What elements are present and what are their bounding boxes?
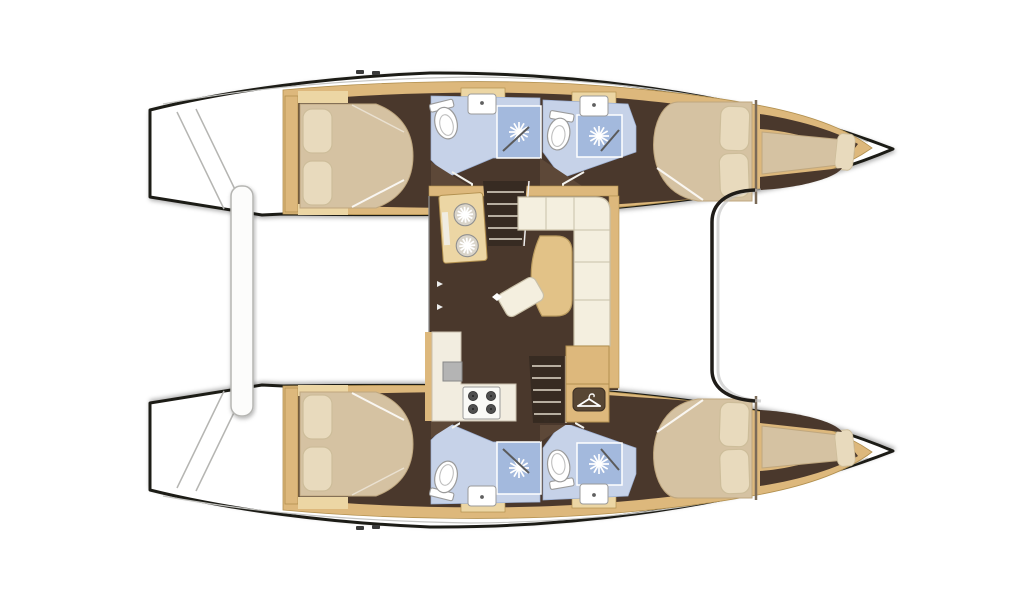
headboard — [285, 96, 298, 212]
floor-plan-canvas — [0, 0, 1024, 600]
dining-table — [531, 236, 572, 316]
pillow-icon — [303, 161, 332, 205]
stove-4-burner — [463, 387, 500, 419]
galley-double-sink — [439, 192, 488, 263]
shelf — [298, 91, 348, 103]
pillow-icon — [303, 109, 332, 153]
pillow-icon — [719, 106, 750, 151]
companionway-stairs-starboard — [529, 356, 566, 423]
cockpit-bench-platform — [231, 186, 253, 416]
sink-icon — [468, 94, 496, 114]
wardrobe-cabinet — [566, 346, 609, 422]
forepeak — [760, 114, 858, 190]
salon — [425, 181, 619, 425]
sink-icon — [580, 96, 608, 116]
pillow-icon — [834, 133, 856, 171]
oven — [443, 362, 462, 381]
coachroof-front-shadow — [718, 190, 761, 401]
deck-cleats — [356, 70, 380, 75]
